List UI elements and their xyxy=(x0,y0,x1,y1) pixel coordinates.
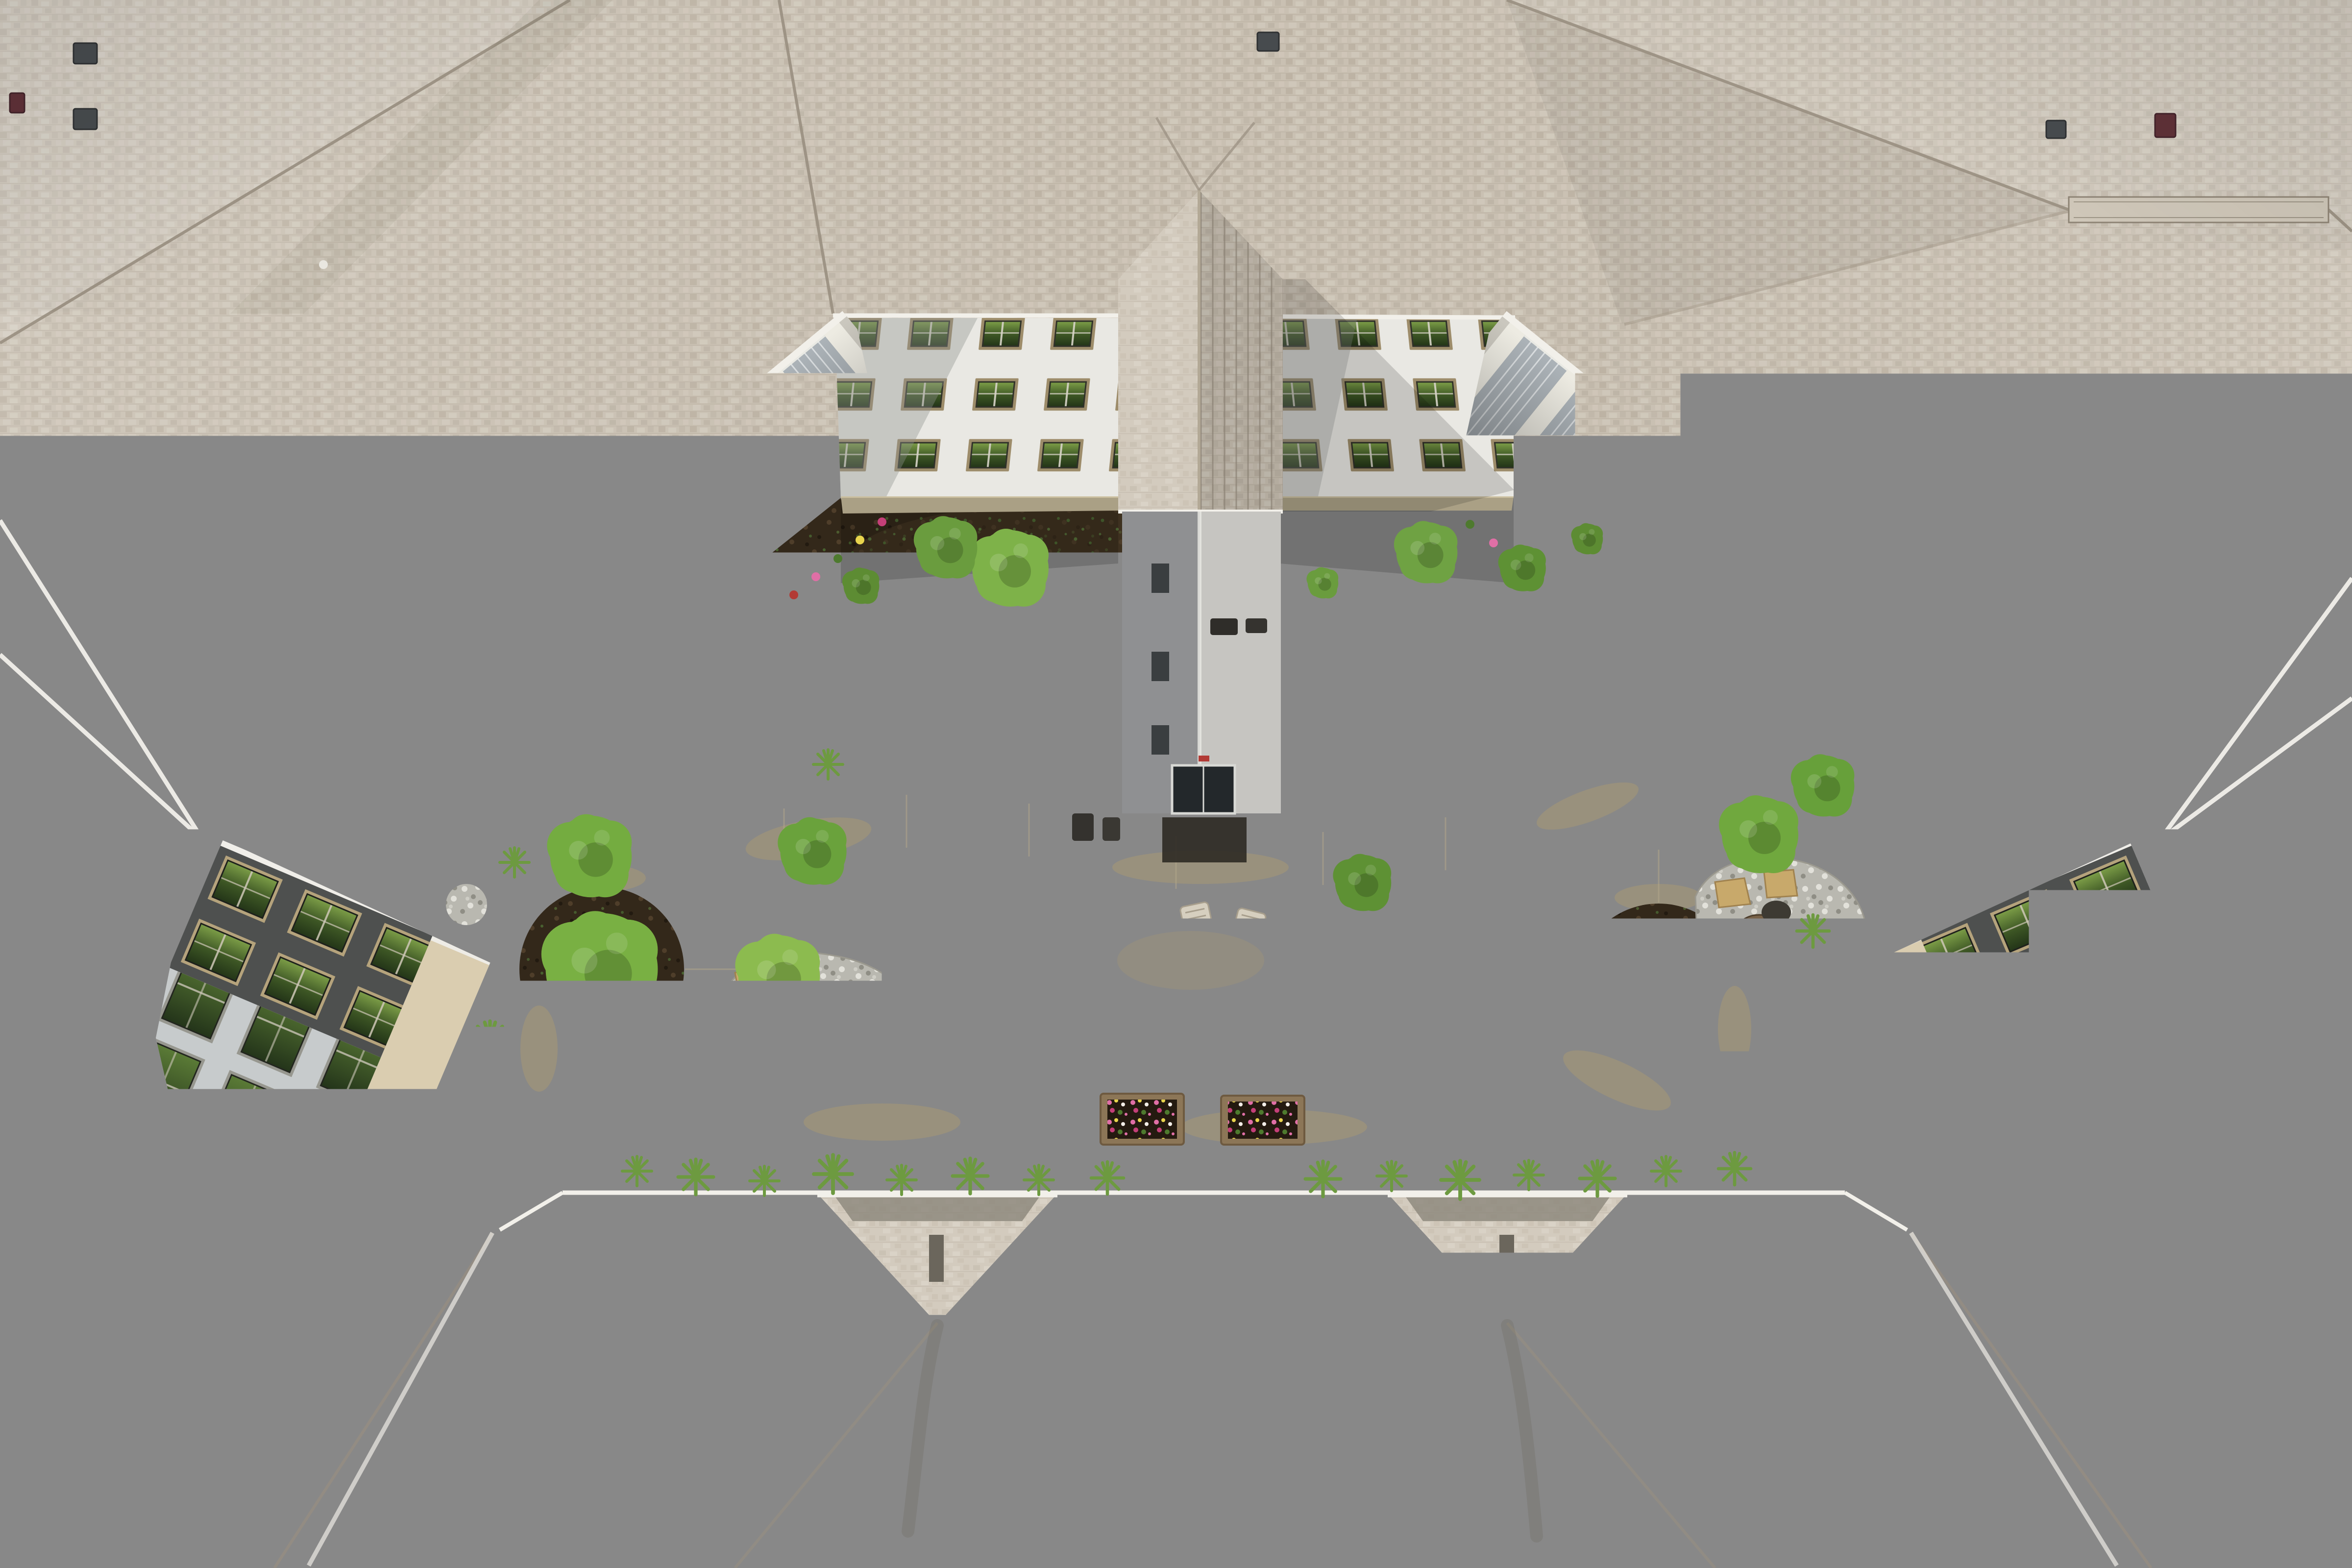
vignette xyxy=(0,0,2352,1568)
photo-canvas: Aerial drone view of a U-shaped apartmen… xyxy=(0,0,2352,1568)
aerial-photo: Aerial drone view of a U-shaped apartmen… xyxy=(0,0,2352,1568)
